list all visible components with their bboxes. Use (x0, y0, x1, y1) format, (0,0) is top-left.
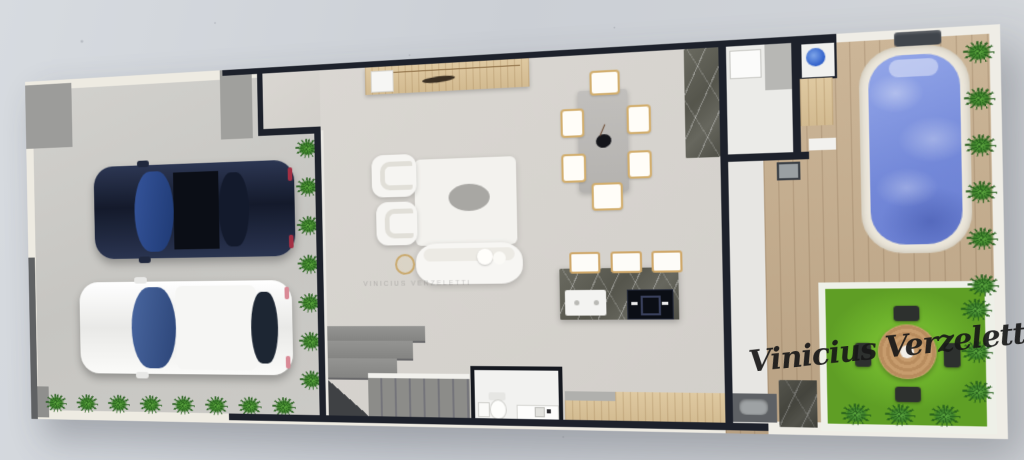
hedge-plant (45, 394, 66, 413)
dining-chair (560, 108, 584, 138)
stair-void (325, 378, 368, 417)
gold-side-table (395, 254, 415, 275)
armchair (376, 201, 418, 245)
car-taillight (289, 235, 294, 249)
car-taillight (286, 356, 291, 369)
cooktop-knob (631, 302, 637, 305)
toilet-bowl (490, 399, 507, 419)
utility-box (777, 162, 801, 181)
wash-basin-unit (729, 49, 761, 79)
floor-plan: VINICIUS VERZELETTI (25, 24, 1008, 439)
garden-chair (893, 306, 919, 321)
hedge-plant (929, 405, 960, 428)
paper-cabinet (478, 402, 490, 417)
dining-chair (561, 153, 586, 182)
hedge-plant (205, 396, 228, 415)
car-roof (175, 285, 257, 370)
car-windshield (131, 287, 177, 369)
stair-treads (368, 378, 470, 418)
garden-chair (895, 387, 921, 403)
car-rear-window (250, 292, 278, 364)
sofa-pillow (477, 249, 493, 265)
car-taillight (288, 167, 293, 181)
vanity-sink (535, 407, 545, 417)
hedge-plant (140, 395, 162, 414)
pool-bench (894, 30, 941, 47)
sink-drain (574, 300, 579, 305)
side-corridor (728, 153, 768, 428)
car-mirror (136, 372, 149, 379)
sink-drain (594, 300, 599, 305)
hedge-plant (967, 274, 999, 296)
dining-chair (626, 104, 651, 134)
hedge-plant (108, 395, 130, 414)
concrete-pad (220, 68, 253, 139)
sofa-pillow (493, 251, 506, 264)
hedge-plant (885, 404, 916, 426)
car-mirror (134, 277, 147, 284)
hedge-plant (841, 403, 871, 425)
sideboard-tray (371, 70, 394, 93)
shower-tile (764, 43, 792, 90)
hedge-plant (961, 299, 993, 321)
car-mirror (137, 160, 149, 167)
car-hatchback (79, 280, 293, 375)
cooktop-center (641, 296, 661, 316)
bar-stool (610, 251, 642, 273)
car-roof (173, 171, 220, 249)
hedge-plant (172, 396, 195, 415)
floor-watermark: VINICIUS VERZELETTI (363, 280, 471, 288)
pool-entry-ledge (889, 58, 939, 78)
car-sedan (94, 160, 296, 260)
marble-pillar (779, 380, 818, 428)
pool-water (868, 52, 963, 245)
cabinet-counter (565, 391, 616, 401)
bar-stool (569, 252, 600, 274)
marble-feature-wall (684, 47, 721, 158)
concrete-pad (25, 83, 72, 149)
car-taillight (284, 287, 289, 300)
bar-stool (651, 250, 682, 272)
car-windshield (134, 171, 175, 252)
armchair (371, 154, 416, 198)
laundry-sink (739, 399, 768, 415)
car-rear-window (218, 172, 249, 247)
dining-chair (627, 150, 652, 179)
dining-chair (589, 69, 620, 95)
hedge-plant (962, 381, 994, 404)
double-sink (565, 290, 607, 316)
dining-chair (592, 182, 624, 211)
hedge-plant (76, 394, 98, 413)
vanity-soap (547, 409, 551, 413)
cooktop-knob (662, 302, 668, 305)
render-backdrop: VINICIUS VERZELETTI (0, 0, 1024, 460)
entry-nook-floor (259, 64, 321, 133)
car-mirror (139, 256, 151, 263)
deck-door-threshold (809, 138, 836, 151)
service-wood-counter (800, 77, 834, 126)
